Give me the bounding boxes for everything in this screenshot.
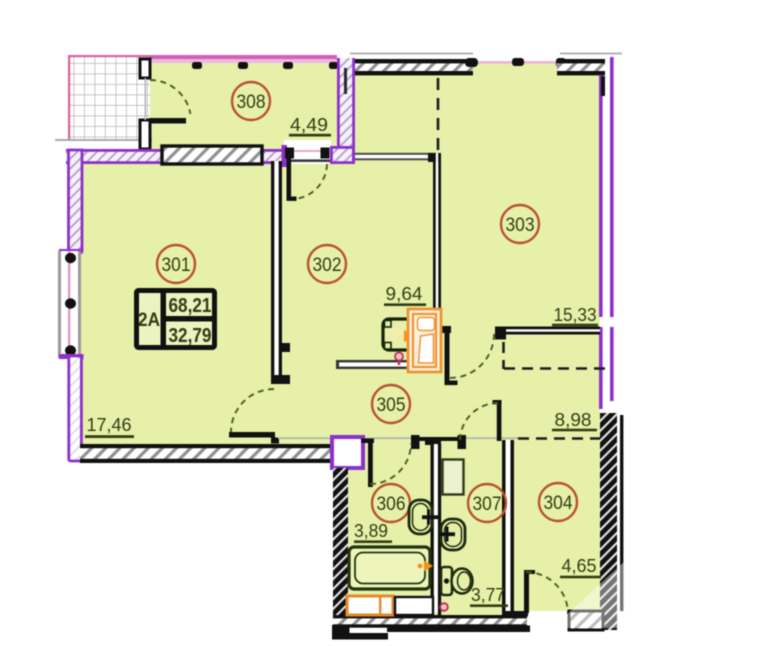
svg-text:308: 308: [237, 92, 266, 113]
svg-text:4,65: 4,65: [562, 556, 597, 576]
svg-text:32,79: 32,79: [169, 325, 212, 347]
svg-text:2A: 2A: [138, 310, 160, 331]
svg-text:307: 307: [473, 494, 502, 515]
svg-text:305: 305: [377, 395, 406, 416]
svg-text:15,33: 15,33: [554, 305, 597, 325]
svg-text:301: 301: [162, 255, 191, 276]
svg-text:303: 303: [506, 215, 535, 236]
svg-text:4,49: 4,49: [290, 115, 328, 135]
svg-text:68,21: 68,21: [169, 295, 212, 317]
svg-text:3,77: 3,77: [471, 585, 505, 605]
svg-text:3,89: 3,89: [354, 521, 388, 541]
svg-text:302: 302: [313, 255, 342, 276]
svg-text:8,98: 8,98: [555, 410, 592, 430]
svg-text:9,64: 9,64: [386, 284, 423, 304]
svg-text:306: 306: [377, 494, 406, 515]
svg-text:17,46: 17,46: [87, 415, 132, 435]
svg-text:304: 304: [544, 493, 573, 514]
